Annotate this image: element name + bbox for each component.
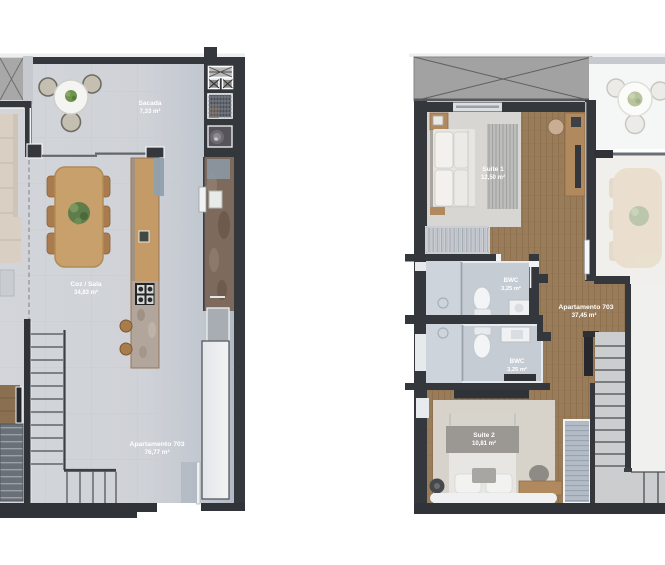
svg-text:BWC: BWC xyxy=(510,358,525,365)
svg-text:37,45 m²: 37,45 m² xyxy=(572,312,597,319)
svg-text:10,81 m²: 10,81 m² xyxy=(472,440,496,447)
svg-text:Apartamento 703: Apartamento 703 xyxy=(129,441,184,448)
svg-text:3,25 m²: 3,25 m² xyxy=(507,366,527,373)
svg-text:3,25 m²: 3,25 m² xyxy=(501,285,521,292)
svg-text:12,50 m²: 12,50 m² xyxy=(481,174,505,181)
svg-text:34,83 m²: 34,83 m² xyxy=(74,289,98,296)
svg-text:7,33 m²: 7,33 m² xyxy=(140,108,161,115)
svg-text:Suite 1: Suite 1 xyxy=(482,166,504,173)
svg-text:Sacada: Sacada xyxy=(138,100,161,107)
svg-text:Suite 2: Suite 2 xyxy=(473,432,495,439)
svg-text:76,77 m²: 76,77 m² xyxy=(145,449,170,456)
svg-text:BWC: BWC xyxy=(504,277,519,284)
svg-text:Apartamento 703: Apartamento 703 xyxy=(558,304,613,311)
svg-text:Coz / Sala: Coz / Sala xyxy=(70,281,101,288)
